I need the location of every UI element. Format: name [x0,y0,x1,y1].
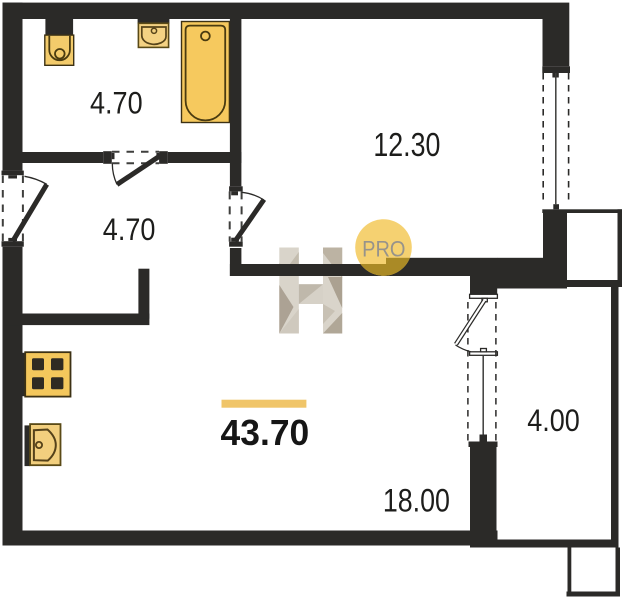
svg-text:4.70: 4.70 [90,85,143,121]
svg-text:PRO: PRO [362,236,405,261]
svg-text:4.00: 4.00 [527,403,580,439]
svg-text:4.70: 4.70 [103,212,156,248]
svg-text:43.70: 43.70 [221,413,310,453]
svg-text:18.00: 18.00 [383,483,450,519]
svg-text:12.30: 12.30 [373,127,440,163]
